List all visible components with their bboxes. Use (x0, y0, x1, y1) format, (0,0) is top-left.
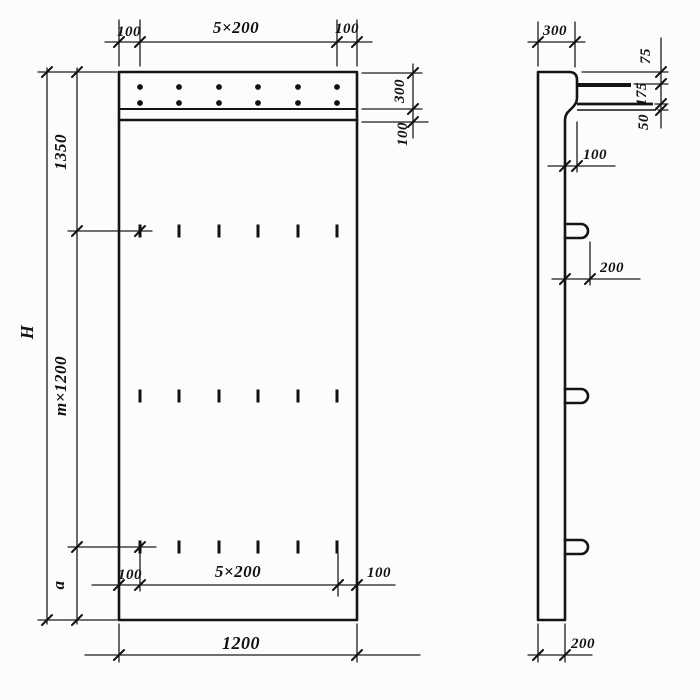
dim-front-lower-offset: a (49, 581, 68, 590)
drawing-sheet: 100 5×200 100 300 100 H 1350 m×1200 a 10… (0, 0, 700, 700)
anchor-dots (137, 84, 340, 106)
dim-side-chain-seg1: 75 (638, 48, 654, 64)
dim-front-upper-offset: 1350 (51, 134, 70, 170)
dim-front-module-height: m×1200 (51, 356, 70, 416)
dim-side-chain-seg3: 50 (636, 114, 652, 130)
dim-side-chain-seg2: 175 (634, 82, 650, 106)
lifting-hooks (565, 224, 588, 554)
dim-side-top-width: 300 (542, 23, 567, 39)
dim-front-top-left: 100 (117, 24, 141, 40)
dim-front-strip-height: 100 (395, 122, 411, 146)
lifting-hook (565, 389, 588, 403)
dim-front-top-center: 5×200 (213, 18, 259, 37)
lifting-hook (565, 224, 588, 238)
wall-profile-outline (538, 72, 577, 620)
dim-front-top-right: 100 (335, 21, 359, 37)
dim-side-step-offset: 100 (583, 147, 607, 163)
side-view: 300 75 175 50 100 200 200 (528, 22, 668, 662)
dim-front-overall-height: H (17, 324, 37, 340)
panel-outline (119, 72, 357, 620)
dim-side-bottom-thickness: 200 (570, 636, 595, 652)
dim-front-overall-width: 1200 (222, 633, 260, 653)
dim-side-hook-projection: 200 (599, 260, 624, 276)
lifting-hook (565, 540, 588, 554)
dim-front-band-height: 300 (392, 79, 408, 104)
front-view: 100 5×200 100 300 100 H 1350 m×1200 a 10… (17, 18, 428, 662)
panel-technical-drawing: 100 5×200 100 300 100 H 1350 m×1200 a 10… (0, 0, 700, 700)
dim-front-bottom-inner-right: 100 (367, 565, 391, 581)
dim-front-bottom-inner-left: 100 (118, 567, 142, 583)
slot-marks (139, 225, 339, 554)
dim-front-bottom-inner-center: 5×200 (215, 562, 261, 581)
